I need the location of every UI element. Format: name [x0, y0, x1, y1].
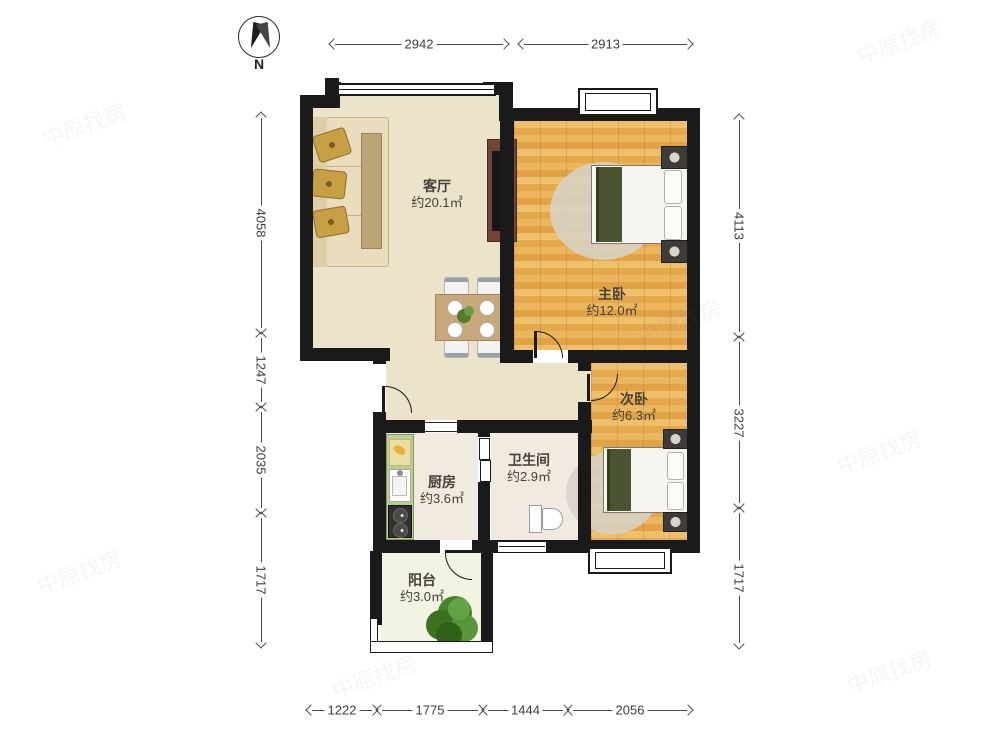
arrow-left-icon: [328, 38, 339, 49]
watermark: 中原找房: [842, 641, 936, 701]
room-name: 主卧: [567, 286, 657, 303]
plate: [479, 322, 495, 338]
room-area: 约2.9㎡: [484, 469, 574, 485]
arrow-up-icon: [733, 506, 744, 517]
dimension-value: 1775: [413, 703, 448, 718]
floor-plan: 客厅 约20.1㎡ 主卧 约12.0㎡ 次卧 约6.3㎡ 厨房 约3.6㎡ 卫生…: [0, 0, 1000, 750]
wall-kitchen-bath: [478, 420, 490, 437]
master-bay-window-inner: [585, 93, 651, 111]
master-pillow: [664, 206, 682, 240]
dimension-value: 1247: [254, 353, 269, 388]
toilet-bowl: [542, 508, 563, 530]
arrow-up-icon: [733, 113, 744, 124]
master-nightstand: [661, 240, 688, 263]
master-door-leaf: [534, 331, 537, 358]
wall: [373, 348, 386, 364]
dimension-value: 1444: [508, 703, 543, 718]
wall-balcony-right: [481, 553, 493, 645]
dimension-value: 1222: [325, 703, 360, 718]
room-label-second: 次卧 约6.3㎡: [589, 391, 679, 424]
room-name: 阳台: [377, 572, 467, 589]
arrow-down-icon: [255, 637, 266, 648]
tv: [492, 151, 500, 231]
master-bed-blanket: [596, 167, 622, 242]
arrow-up-icon: [733, 335, 744, 346]
dimension-left-4: 1717: [253, 513, 269, 647]
wall-living-master: [500, 121, 514, 363]
arrow-right-icon: [682, 704, 693, 715]
bathroom-window: [497, 541, 547, 553]
dimension-top-1: 2942: [330, 36, 508, 52]
compass-north-label: N: [247, 56, 271, 72]
wall-kitchen-top: [373, 420, 425, 433]
dimension-right-3: 1717: [731, 508, 747, 648]
arrow-left-icon: [305, 704, 316, 715]
second-nightstand: [663, 429, 688, 449]
second-bed-blanket: [607, 449, 631, 511]
second-nightstand: [663, 512, 688, 532]
arrow-down-icon: [733, 638, 744, 649]
dimension-right-1: 4113: [731, 115, 747, 337]
arrow-right-icon: [682, 38, 693, 49]
balcony-railing: [370, 641, 493, 653]
wall-master-bottom: [500, 350, 533, 363]
watermark: 中原找房: [832, 421, 926, 481]
toilet-tank: [529, 505, 542, 533]
arrow-left-icon: [375, 704, 386, 715]
stove-burner: [393, 523, 408, 538]
room-label-master: 主卧 约12.0㎡: [567, 286, 657, 319]
dining-chair: [444, 339, 469, 358]
table-plant: [464, 306, 474, 316]
arrow-left-icon: [566, 704, 577, 715]
dimension-value: 4058: [254, 206, 269, 241]
dimension-bottom-2: 1775: [377, 702, 483, 718]
arrow-up-icon: [255, 511, 266, 522]
dimension-left-1: 4058: [253, 113, 269, 333]
room-name: 次卧: [589, 391, 679, 408]
watermark: 中原找房: [852, 11, 946, 71]
stove-burner: [393, 508, 408, 523]
dimension-right-2: 3227: [731, 337, 747, 508]
bathroom-window-mullion: [499, 546, 545, 547]
plate: [479, 300, 495, 316]
dimension-value: 1717: [732, 561, 747, 596]
wall-second-left: [578, 363, 591, 371]
room-name: 客厅: [392, 178, 482, 195]
second-pillow: [667, 482, 684, 510]
coffee-table: [361, 133, 382, 249]
room-label-bathroom: 卫生间 约2.9㎡: [484, 452, 574, 485]
dimension-value: 1717: [254, 563, 269, 598]
dimension-value: 3227: [732, 405, 747, 440]
balcony-door-leaf: [445, 550, 472, 553]
wall: [373, 412, 386, 553]
kitchen-opening: [425, 422, 457, 432]
arrow-up-icon: [255, 405, 266, 416]
arrow-right-icon: [498, 38, 509, 49]
master-pillow: [664, 170, 682, 204]
second-bay-window-inner: [595, 552, 665, 569]
arrow-left-icon: [481, 704, 492, 715]
watermark: 中原找房: [327, 646, 421, 706]
watermark: 中原找房: [32, 541, 126, 601]
dimension-bottom-4: 2056: [568, 702, 692, 718]
room-label-balcony: 阳台 约3.0㎡: [377, 572, 467, 605]
room-area: 约6.3㎡: [589, 408, 679, 424]
dimension-left-3: 2035: [253, 407, 269, 513]
room-name: 厨房: [397, 474, 487, 491]
arrow-left-icon: [517, 38, 528, 49]
dimension-value: 2942: [402, 37, 437, 52]
dimension-top-2: 2913: [519, 36, 692, 52]
wall-kitchen-bottom: [373, 540, 440, 553]
dimension-bottom-3: 1444: [483, 702, 568, 718]
dimension-value: 2913: [588, 37, 623, 52]
arrow-up-icon: [255, 111, 266, 122]
room-label-living: 客厅 约20.1㎡: [392, 178, 482, 211]
dining-chair: [477, 339, 502, 358]
second-pillow: [667, 452, 684, 480]
living-window-mullion: [339, 89, 494, 90]
room-area: 约20.1㎡: [392, 195, 482, 211]
dimension-left-2: 1247: [253, 333, 269, 407]
wall-left-outer: [300, 95, 313, 361]
plate: [447, 322, 463, 338]
arrow-up-icon: [255, 331, 266, 342]
sofa-pillow: [311, 168, 348, 199]
dimension-value: 2056: [613, 703, 648, 718]
room-area: 约3.0㎡: [377, 589, 467, 605]
sofa-pillow: [312, 205, 350, 238]
dimension-value: 4113: [732, 209, 747, 243]
entry-door-leaf: [382, 386, 385, 414]
room-name: 卫生间: [484, 452, 574, 469]
room-label-kitchen: 厨房 约3.6㎡: [397, 474, 487, 507]
wall-master-bottom: [568, 350, 700, 363]
master-nightstand: [661, 146, 688, 169]
room-area: 约3.6㎡: [397, 491, 487, 507]
watermark: 中原找房: [37, 94, 131, 154]
dimension-value: 2035: [254, 443, 269, 478]
